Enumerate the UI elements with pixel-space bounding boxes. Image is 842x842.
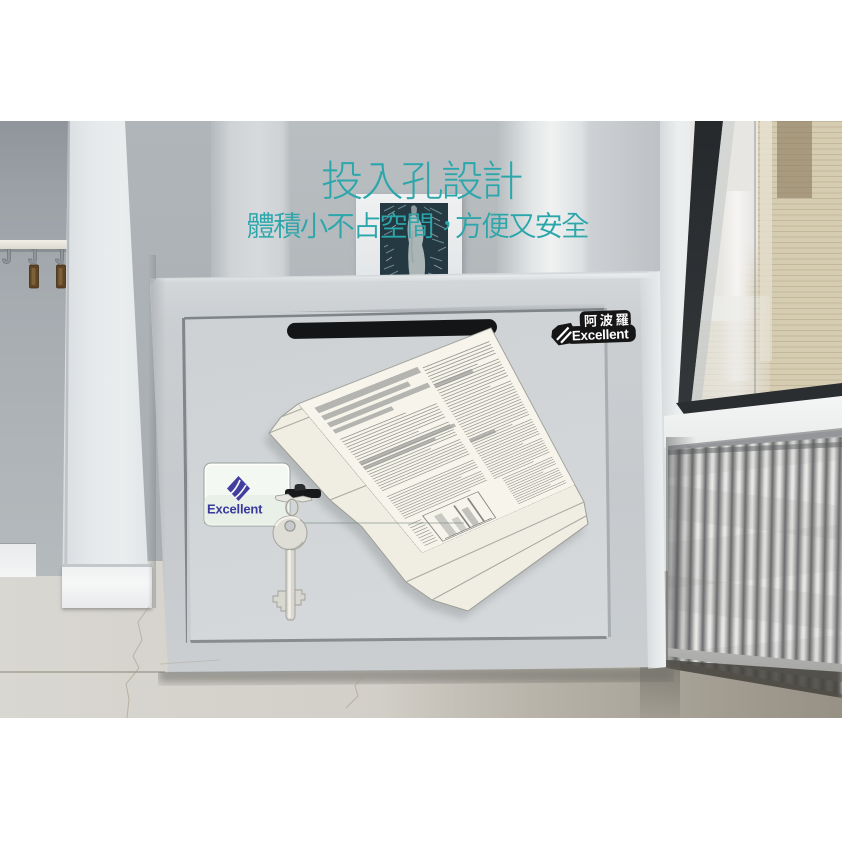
svg-text:Excellent: Excellent (207, 502, 263, 517)
